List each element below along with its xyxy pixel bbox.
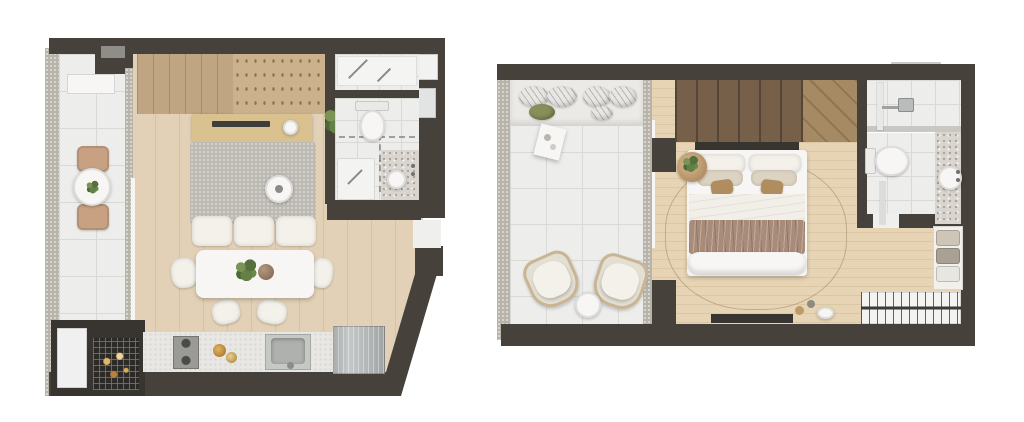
wall-right — [961, 64, 975, 346]
faucet — [287, 362, 294, 369]
tv-bench — [711, 314, 793, 323]
shelf-basket — [936, 230, 960, 246]
pan — [213, 344, 226, 357]
entry-door-opening — [413, 220, 441, 248]
wardrobe — [675, 80, 803, 142]
wall-top — [497, 64, 973, 80]
toilet-bowl — [875, 146, 909, 176]
decor-vase — [807, 300, 815, 308]
shower-area — [337, 158, 375, 200]
table-plant — [233, 258, 259, 284]
floor-plan-bedroom — [495, 62, 977, 348]
vent-box — [101, 46, 125, 58]
washer — [57, 328, 87, 388]
faucet-dot — [411, 172, 415, 176]
sofa-bed — [190, 142, 316, 224]
floor-plans-canvas — [0, 0, 1024, 422]
laptop — [212, 121, 270, 127]
wardrobe-corner — [803, 80, 857, 142]
faucet-dot — [411, 164, 415, 168]
cup — [544, 134, 551, 141]
decor-vase — [795, 306, 804, 315]
bed-folded-blanket — [688, 252, 806, 274]
sofa-cushion — [192, 216, 232, 246]
floor-plan-living — [45, 38, 445, 396]
faucet-dot — [956, 170, 960, 174]
sofa-pillow — [591, 106, 613, 120]
sofa-pillow — [583, 86, 611, 107]
toilet-bowl — [360, 110, 385, 141]
pan — [226, 352, 237, 363]
wardrobe-shelving — [233, 54, 325, 114]
sofa-cushion — [276, 216, 316, 246]
wall-niche-upper — [652, 138, 676, 172]
ac-unit — [67, 74, 115, 94]
faucet-dot — [956, 178, 960, 182]
wall-entry — [415, 246, 443, 276]
wall-bathroom-bottom — [327, 200, 421, 220]
wardrobe-panels — [137, 54, 233, 114]
bathroom-divider-wall — [333, 90, 419, 98]
shower-arm — [882, 106, 899, 109]
fridge — [333, 326, 385, 374]
side-table-decor — [275, 185, 283, 193]
shelf-basket — [936, 266, 960, 282]
table-bowl — [258, 264, 274, 280]
shelf-basket — [936, 248, 960, 264]
balcony-chair-bottom — [77, 204, 109, 230]
decor-dish — [817, 307, 834, 319]
cup — [550, 144, 556, 150]
wall-bottom — [501, 324, 967, 346]
glass-partition — [880, 182, 885, 224]
nightstand-plant — [681, 155, 700, 174]
sink-basin — [271, 338, 305, 364]
sofa-pillow-green — [529, 104, 555, 120]
sofa-pillow — [609, 86, 637, 107]
cooktop — [173, 336, 199, 369]
wall-niche-lower — [652, 280, 676, 326]
bathroom-door-opening — [873, 214, 899, 228]
bed-duvet — [689, 194, 805, 222]
balcony-table-plant — [85, 180, 100, 195]
balcony-edge-strip — [497, 74, 510, 340]
desk-speaker — [283, 120, 298, 135]
basin — [387, 170, 406, 189]
lounge-side-table — [575, 292, 601, 318]
dining-chair-left — [169, 257, 198, 290]
balcony-glass-door — [131, 178, 135, 322]
clothes-rack — [861, 292, 961, 324]
shower-head — [898, 98, 914, 112]
sofa-cushion — [234, 216, 274, 246]
sofa-pillow — [547, 86, 577, 107]
grill-embers — [93, 338, 139, 390]
throw-blanket — [689, 220, 805, 254]
